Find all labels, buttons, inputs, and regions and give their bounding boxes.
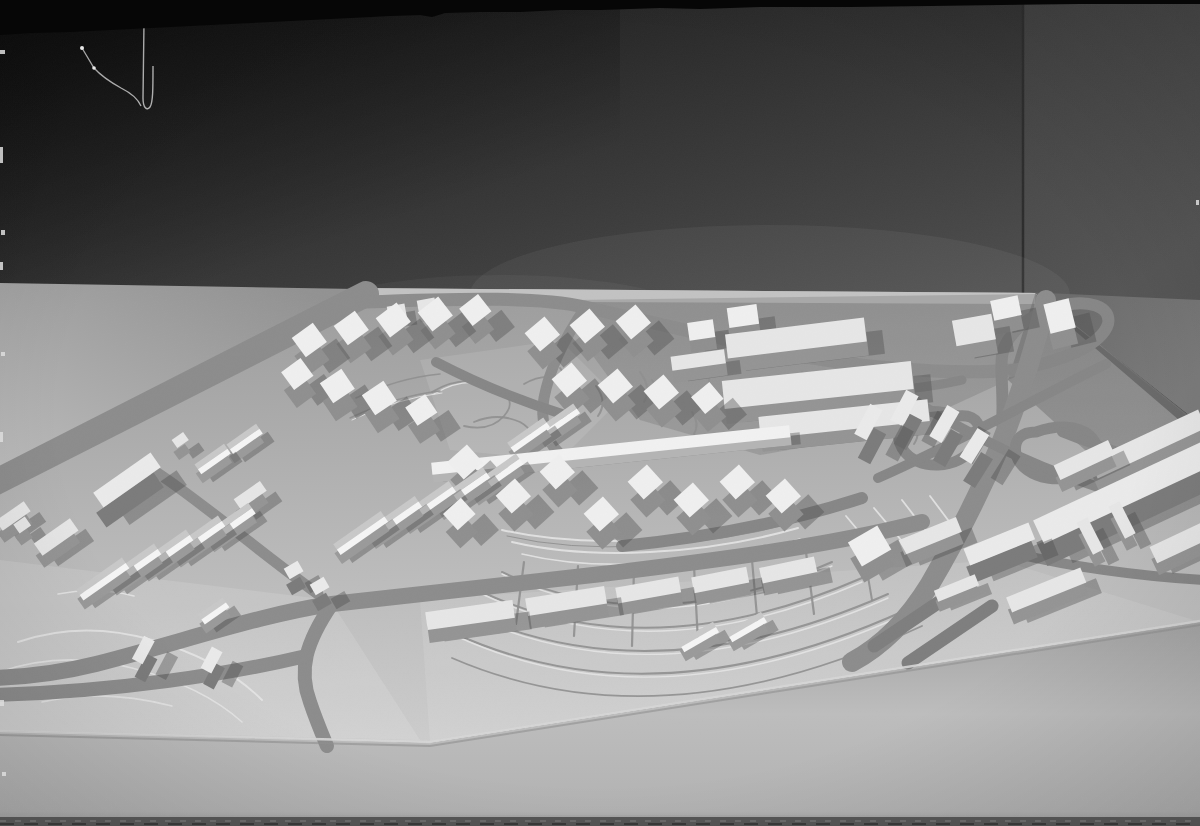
film-speck xyxy=(0,432,3,442)
photo-canvas xyxy=(0,0,1200,826)
film-speck xyxy=(0,147,3,163)
film-speck xyxy=(1,230,5,235)
photograph-architectural-model xyxy=(0,0,1200,826)
film-speck xyxy=(0,50,5,54)
film-speck xyxy=(0,262,3,270)
film-speck xyxy=(1196,200,1199,205)
film-grain xyxy=(0,0,1200,826)
film-speck xyxy=(1,352,5,356)
film-speck xyxy=(2,518,5,522)
film-speck xyxy=(0,700,4,706)
film-artifacts xyxy=(0,0,1200,826)
film-speck xyxy=(2,772,6,776)
